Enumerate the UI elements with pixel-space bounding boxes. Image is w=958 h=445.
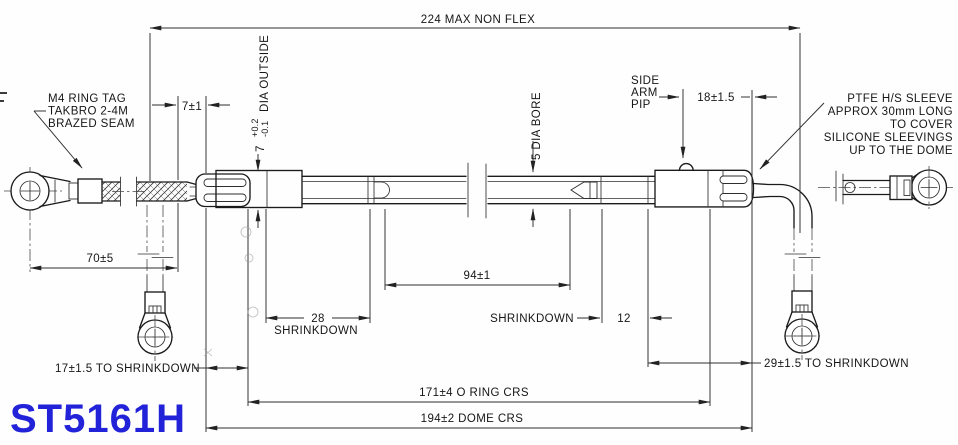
dim-ninety-four-label: 94±1 <box>463 270 490 282</box>
left-cable <box>102 177 208 206</box>
dim-seventy-label: 70±5 <box>86 253 113 265</box>
dim-seventeen: 17±1.5 TO SHRINKDOWN <box>55 363 248 375</box>
dim-twelve-value: 12 <box>617 313 631 325</box>
right-end-ring-terminal <box>818 166 956 209</box>
dim-dome-label: 194±2 DOME CRS <box>421 413 524 425</box>
dim-seventy: 70±5 <box>30 253 177 268</box>
dia-outside-label: DIA OUTSIDE <box>259 35 271 112</box>
dim-twenty-eight-value: 28 <box>311 313 325 325</box>
scan-artifacts <box>0 93 258 356</box>
dia-tol-minus: -0.1 <box>260 121 270 137</box>
dim-twenty-nine-label: 29±1.5 TO SHRINKDOWN <box>764 358 909 370</box>
dia-value: 7 <box>255 145 267 152</box>
dim-o-ring-crs: 171±4 O RING CRS <box>248 387 710 402</box>
dim-seventeen-label: 17±1.5 TO SHRINKDOWN <box>55 363 200 375</box>
note-ptfe-line4: SILICONE SLEEVINGS <box>824 132 953 144</box>
dim-bore: 5 DIA BORE <box>531 92 543 227</box>
dim-twelve: SHRINKDOWN 12 <box>490 313 672 325</box>
dim-seven-label: 7±1 <box>182 101 202 113</box>
right-rod-bend <box>754 184 813 253</box>
side-arm-pip <box>680 164 694 171</box>
pip-label-2: ARM <box>631 87 658 99</box>
dim-dia-outside: DIA OUTSIDE +0.2 -0.1 7 <box>250 35 271 228</box>
dim-twenty-eight: 28 SHRINKDOWN <box>266 313 370 337</box>
note-left-tag-line1: M4 RING TAG <box>48 93 126 105</box>
part-number: ST5161H <box>10 397 186 441</box>
right-clevis-fitting <box>655 164 754 207</box>
note-ptfe-line5: UP TO THE DOME <box>849 145 953 157</box>
engineering-drawing-page: 224 MAX NON FLEX 7±1 DIA OUTSIDE +0.2 -0… <box>0 0 958 445</box>
pip-label-3: PIP <box>631 99 651 111</box>
note-ptfe-sleeve: PTFE H/S SLEEVE APPROX 30mm LONG TO COVE… <box>760 93 953 169</box>
dim-o-ring-label: 171±4 O RING CRS <box>419 387 529 399</box>
dim-twenty-nine: 29±1.5 TO SHRINKDOWN <box>648 358 909 370</box>
dim-eighteen-label: 18±1.5 <box>697 92 735 104</box>
dim-eighteen: 18±1.5 <box>697 92 777 104</box>
dia-tol-plus: +0.2 <box>250 118 260 137</box>
dim-twenty-eight-word: SHRINKDOWN <box>274 325 358 337</box>
dim-overall-length: 224 MAX NON FLEX <box>150 14 800 28</box>
right-hanging-ring-terminal <box>784 254 820 360</box>
left-hanging-ring-terminal <box>137 205 173 361</box>
dim-twelve-word: SHRINKDOWN <box>490 313 574 325</box>
dim-side-arm-pip: SIDE ARM PIP <box>631 75 683 158</box>
dim-dome-crs: 194±2 DOME CRS <box>206 413 752 428</box>
dim-overall-label: 224 MAX NON FLEX <box>421 14 535 26</box>
note-left-tag-line2: TAKBRO 2-4M <box>48 106 128 118</box>
note-ptfe-line2: APPROX 30mm LONG <box>828 106 953 118</box>
cable-assembly-drawing: 224 MAX NON FLEX 7±1 DIA OUTSIDE +0.2 -0… <box>0 0 958 445</box>
dim-ninety-four: 94±1 <box>385 270 570 285</box>
note-ptfe-line1: PTFE H/S SLEEVE <box>847 93 953 105</box>
note-ptfe-line3: TO COVER <box>890 119 953 131</box>
dim-seven: 7±1 <box>152 101 230 113</box>
pip-label-1: SIDE <box>631 75 659 87</box>
note-left-tag: M4 RING TAG TAKBRO 2-4M BRAZED SEAM <box>34 93 135 168</box>
inner-cable-stop <box>571 182 597 199</box>
note-left-tag-line3: BRAZED SEAM <box>48 118 135 130</box>
left-clevis-fitting <box>196 171 302 208</box>
